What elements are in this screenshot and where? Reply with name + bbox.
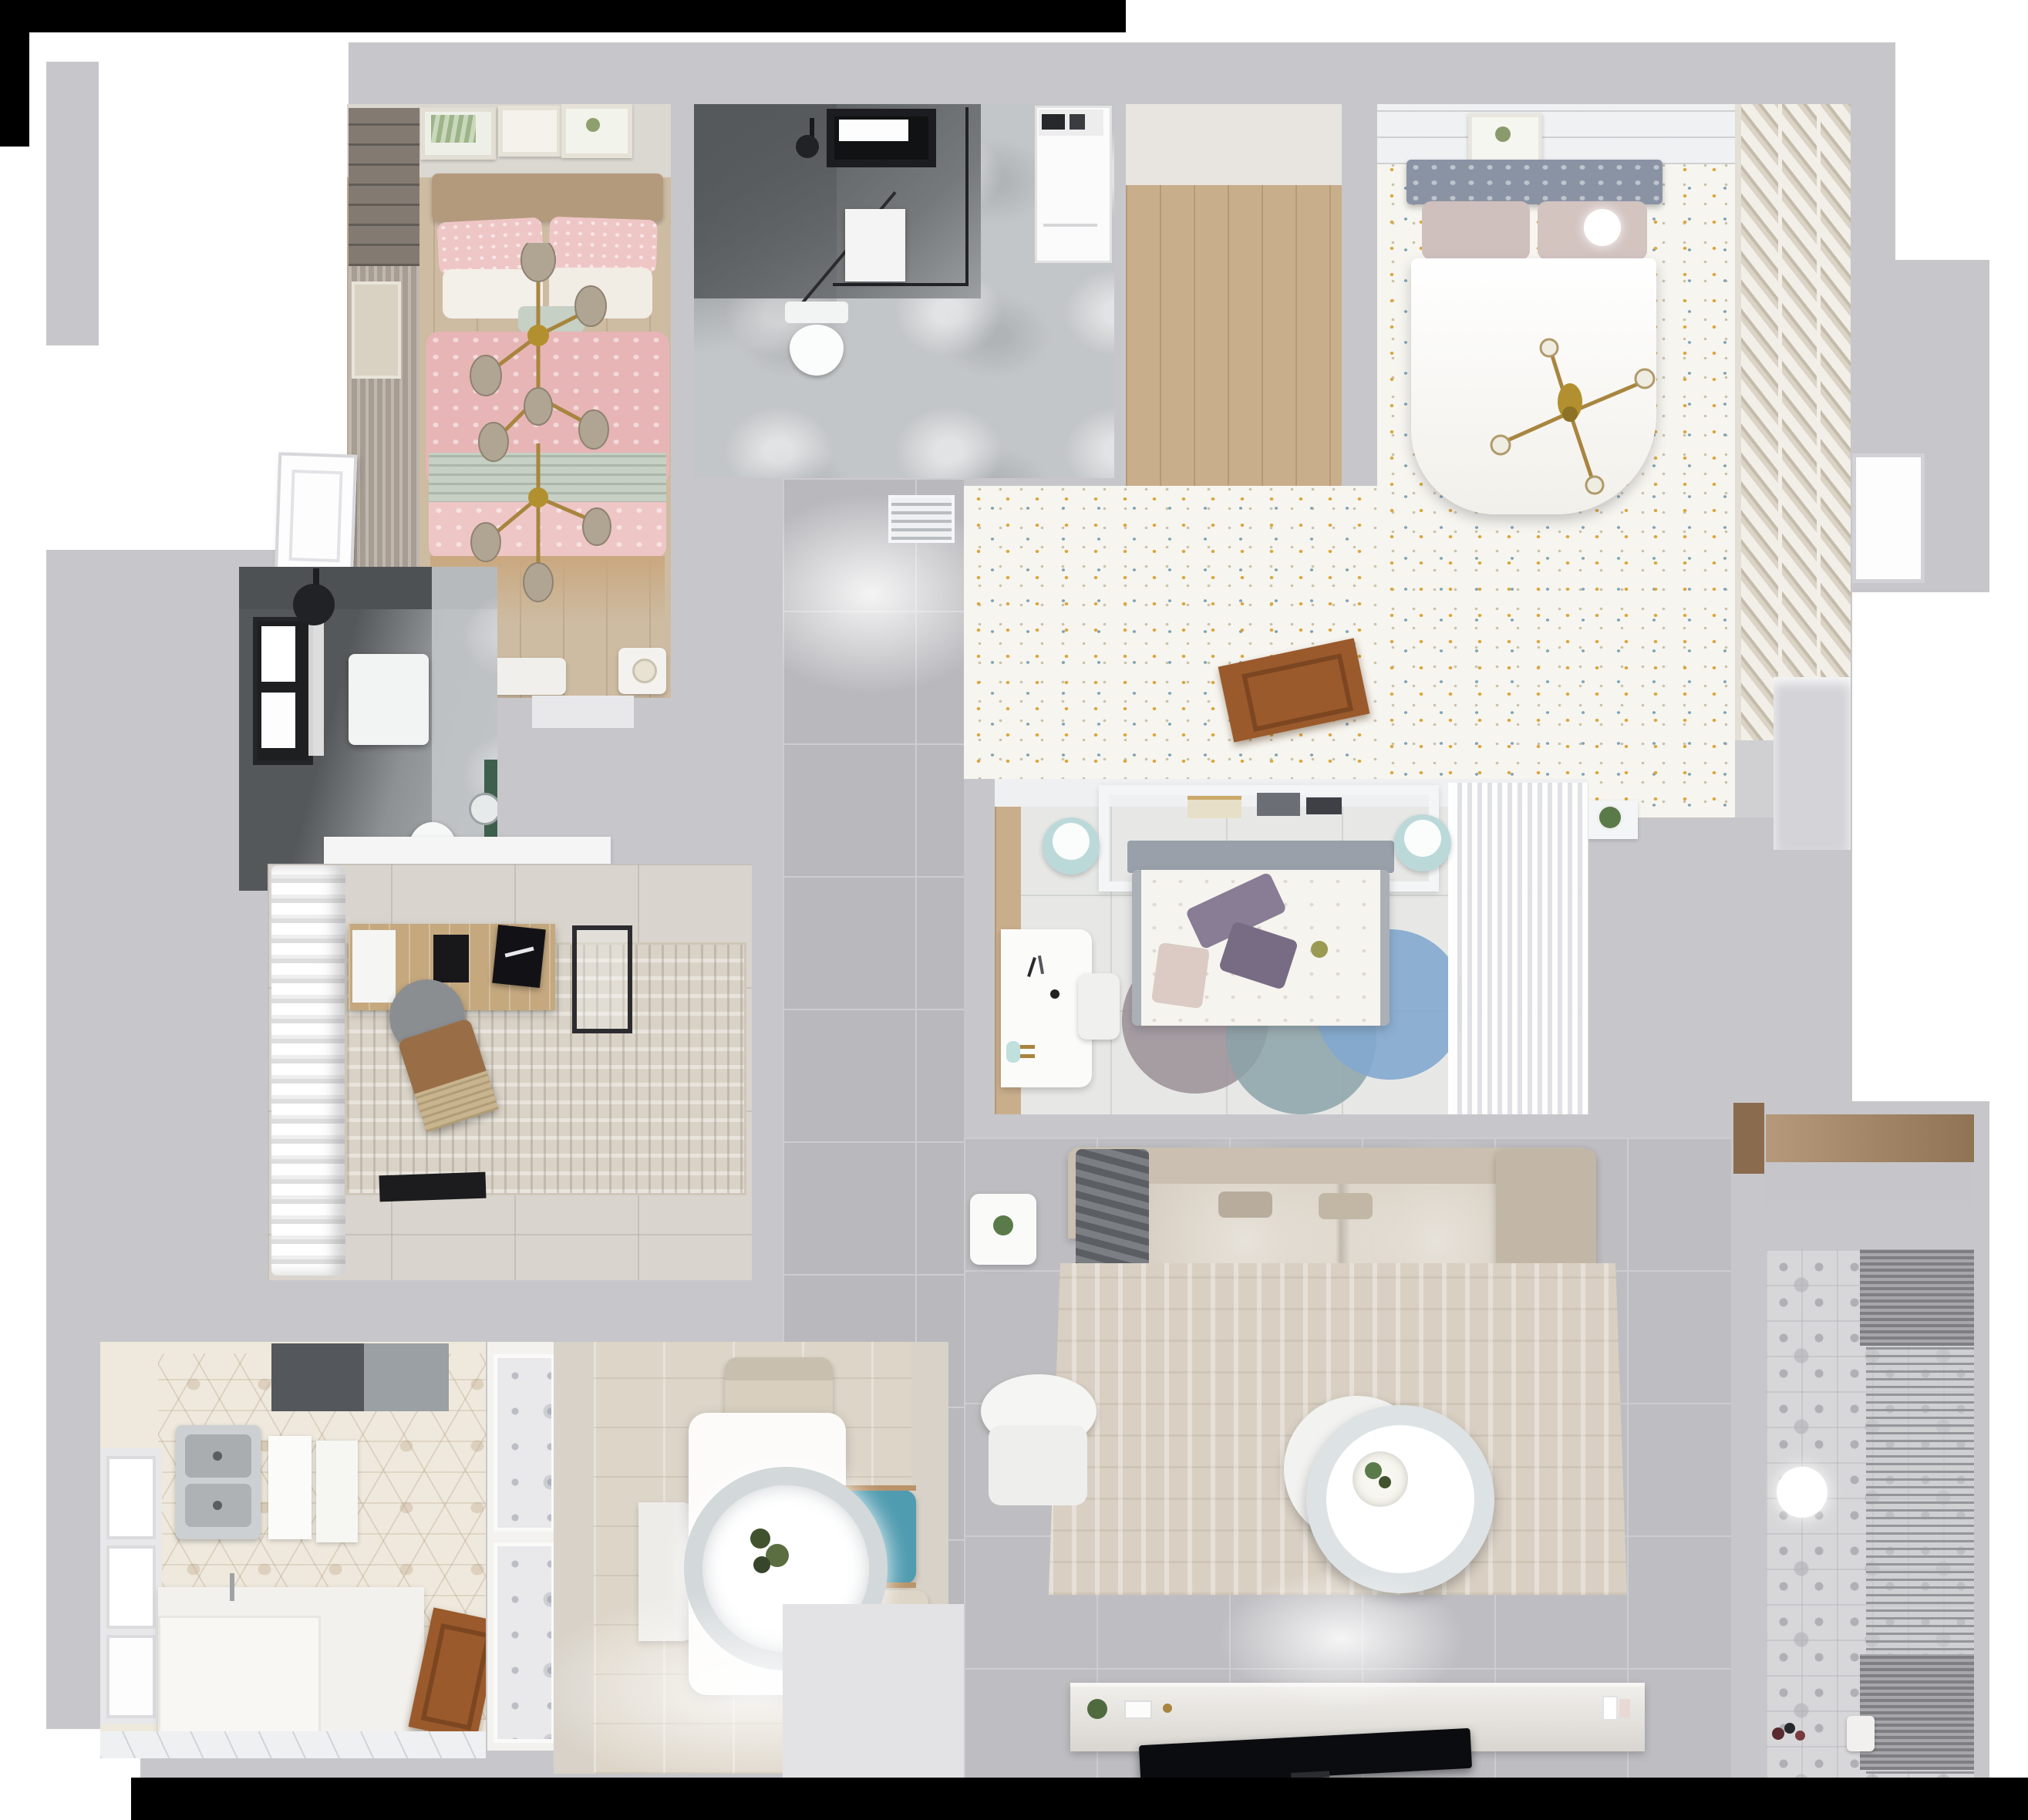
exterior-wall-stub (46, 62, 99, 345)
matting-top (27, 0, 1126, 32)
armchair (981, 1374, 1097, 1505)
kids-desk-chair (1078, 973, 1120, 1040)
room-study (268, 864, 752, 1280)
kitchen-glass-partition (487, 1342, 554, 1751)
shower-wall-panel (845, 209, 905, 281)
wall-art-frame-2 (498, 106, 561, 157)
table-plant-2 (1379, 1476, 1391, 1488)
blinds-bunch-top (1860, 1249, 1974, 1346)
kitchen-window-pane-2 (106, 1545, 156, 1629)
coffee-table-center (1353, 1451, 1408, 1507)
desk-pen (1027, 957, 1036, 977)
washer-knob (1070, 114, 1085, 130)
botanical-sprig (586, 118, 600, 132)
gold-branch-chandelier (446, 243, 662, 605)
side-table-plant (993, 1215, 1013, 1235)
partition-deco-panel-1 (494, 1354, 555, 1532)
plant-leaf-1 (750, 1528, 770, 1549)
bed-rail-left (1132, 870, 1141, 1026)
exterior-top-right (1895, 42, 1989, 260)
blinds-bunch-bottom (1860, 1654, 1974, 1770)
sofa-pillow-2 (1319, 1193, 1373, 1219)
exterior-right (1852, 592, 1989, 1101)
door-panel-inset (1241, 653, 1353, 732)
book-stack-2 (1257, 793, 1300, 816)
wall-art-frame-3 (561, 104, 632, 158)
drain-1 (213, 1451, 222, 1461)
room-balcony (1766, 1249, 1974, 1778)
table-plant (1365, 1462, 1382, 1479)
bath-wall-cabinet (349, 654, 429, 745)
toilet-tank (785, 302, 848, 323)
right-wall-niche (1774, 677, 1851, 850)
room-living (964, 1137, 1731, 1778)
armchair-seat (989, 1425, 1087, 1505)
nightstand (618, 648, 666, 694)
washing-machine (1035, 106, 1112, 263)
wardrobe-divider-2 (1817, 104, 1821, 740)
desk-gold-handle (1018, 1045, 1035, 1049)
washer-display (1042, 114, 1065, 130)
stool-top-right (1404, 820, 1441, 857)
billowy-curtains (271, 865, 345, 1276)
sink-basin-1 (185, 1434, 251, 1478)
window-light-band (308, 617, 324, 756)
console-bottle-1 (1602, 1696, 1618, 1721)
entry-floor (783, 1604, 964, 1778)
fridge-dark-half (271, 1343, 364, 1411)
master-plant-ledge (1582, 800, 1638, 839)
monitor-art (492, 925, 546, 988)
partition-deco-panel-2 (494, 1542, 555, 1743)
kitchen-white-tile-strip (100, 1731, 486, 1758)
bed-headboard (432, 174, 663, 221)
niche-wood-shelf (1766, 1114, 1974, 1162)
louvered-wardrobe (1735, 104, 1851, 740)
double-sink (176, 1425, 261, 1539)
round-coffee-table (1306, 1405, 1494, 1593)
console-gold-dot (1163, 1704, 1172, 1713)
chair-top-back (725, 1357, 833, 1380)
wardrobe-divider-1 (1778, 104, 1782, 740)
desk-pen-2 (1038, 956, 1044, 974)
sheer-wardrobe (1448, 783, 1588, 1114)
desk-gold-handle-2 (1018, 1054, 1035, 1058)
master-pillow-left (1422, 201, 1530, 260)
master-side-door (1852, 453, 1925, 583)
console-plant (1087, 1699, 1107, 1719)
master-ceiling-strip (1377, 104, 1735, 164)
pendant-plant-centerpiece (746, 1522, 795, 1584)
bedroom-pink-door-threshold (532, 696, 634, 728)
botanical-print (431, 115, 476, 143)
book-stack-3 (1306, 797, 1342, 814)
washer-door-line (1043, 224, 1097, 227)
art-squiggle (505, 947, 534, 958)
fridge (271, 1343, 449, 1411)
room-kids-bedroom (995, 779, 1588, 1114)
desk-dot (1050, 989, 1059, 999)
console-box (1124, 1700, 1152, 1719)
bed-rail-right (1380, 870, 1390, 1026)
sphere-lamp (1777, 1467, 1828, 1518)
sofa-pillow-1 (1218, 1191, 1272, 1218)
console-bottle-2 (1619, 1699, 1630, 1717)
matting-left (0, 0, 29, 147)
counter-block (158, 1616, 321, 1738)
laptop (433, 935, 469, 982)
tv-stand (1291, 1771, 1329, 1778)
closet-wood-floor (1126, 185, 1342, 494)
left-wall-art (352, 281, 401, 379)
gold-cross-chandelier (1470, 328, 1670, 513)
teal-bottle (1006, 1041, 1020, 1063)
balcony-toys (1772, 1721, 1818, 1744)
wall-art-frame-1 (420, 107, 496, 160)
kids-bed (1132, 870, 1390, 1026)
teal-stool-left (1043, 817, 1100, 875)
drain-2 (213, 1501, 222, 1510)
kitchen-window (100, 1448, 162, 1724)
table-lamp (632, 659, 657, 683)
shower-glass-vertical (965, 107, 969, 286)
cutting-board-1 (268, 1436, 312, 1539)
study-floor-mat (379, 1172, 486, 1202)
ball-lamp (1584, 209, 1621, 246)
room-bathroom-shower (694, 104, 1114, 478)
air-vent-grille (888, 495, 955, 543)
roman-shade (349, 108, 419, 266)
room-kitchen (100, 1342, 486, 1758)
room-walk-in-closet (1126, 104, 1342, 494)
room-upper-hallway (964, 486, 1380, 779)
round-mirror (469, 793, 497, 825)
door-panel-upper (289, 470, 343, 562)
book-stack-1 (1187, 796, 1241, 818)
balcony-door-wood-corner (1733, 1103, 1764, 1174)
floorplan-render (0, 0, 2028, 1820)
side-table (970, 1194, 1036, 1265)
counter-faucet (230, 1573, 234, 1601)
pillow-blush (1151, 942, 1210, 1009)
shelf-books (1187, 791, 1342, 821)
desk-side-frame (572, 925, 632, 1033)
plant-leaf-3 (753, 1556, 770, 1573)
bath-window (253, 617, 313, 765)
hallway-speckled-carpet (964, 486, 1380, 779)
art-plant-motif (1495, 126, 1511, 142)
duvet-button (1311, 941, 1328, 958)
skylight-window (827, 109, 936, 167)
matting-bottom (131, 1778, 2028, 1820)
ceiling-shower-head (293, 584, 335, 625)
stool-top-left (1053, 823, 1090, 860)
kids-headboard (1127, 841, 1394, 873)
toy-3 (1795, 1731, 1805, 1741)
cutting-board-2 (316, 1441, 358, 1542)
potted-plant (1599, 807, 1621, 828)
balcony-storage-niche (1766, 1114, 1974, 1207)
shower-glass-horizontal (833, 283, 969, 286)
kitchen-window-pane-1 (106, 1456, 156, 1539)
closet-upper-wall (1126, 104, 1342, 185)
sink-basin-2 (185, 1484, 251, 1527)
master-headboard (1406, 160, 1662, 204)
skylight-pane (839, 120, 908, 141)
kitchen-window-pane-3 (106, 1635, 156, 1718)
toy-2 (1784, 1723, 1795, 1734)
window-pane-upper (261, 626, 295, 682)
kitchen-door-inset (421, 1623, 486, 1731)
shower-head (796, 135, 819, 158)
desk-paper (352, 930, 396, 1003)
teal-stool-right (1394, 814, 1451, 871)
toy-1 (1772, 1727, 1784, 1740)
watering-can (1847, 1716, 1875, 1751)
window-pane-lower (261, 693, 295, 748)
washer-control-panel (1039, 110, 1103, 136)
